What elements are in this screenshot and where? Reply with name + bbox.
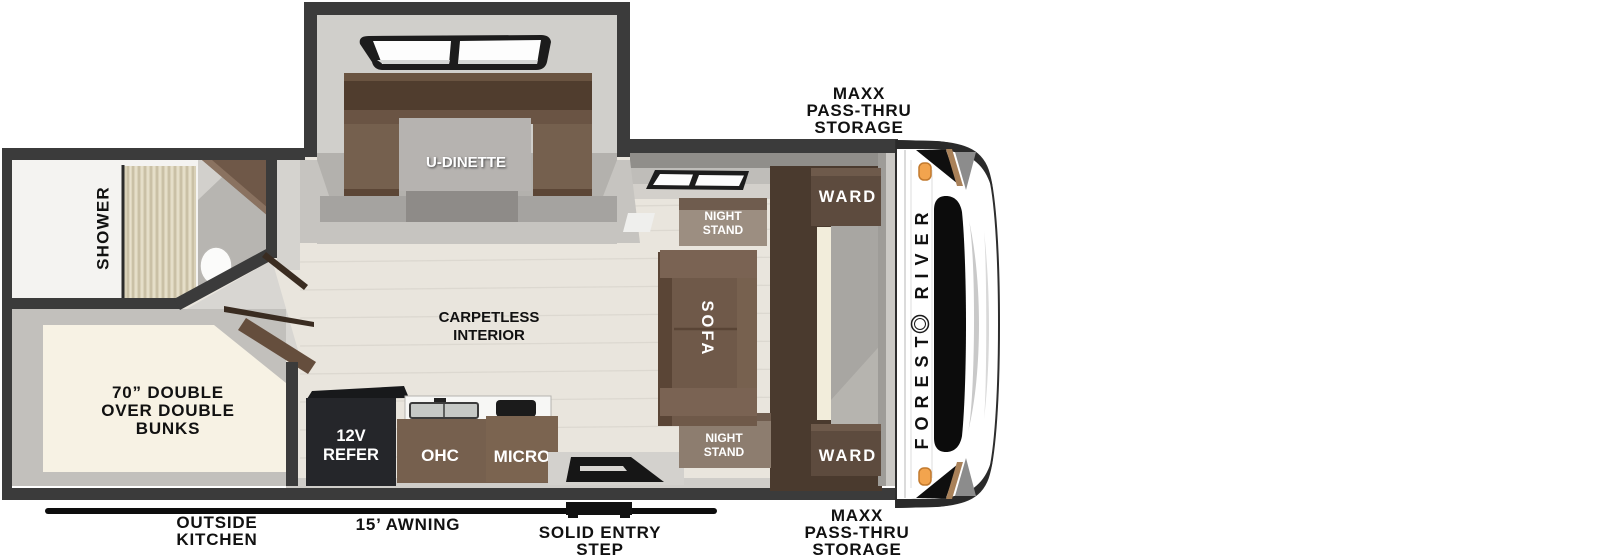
svg-text:CARPETLESS: CARPETLESS bbox=[439, 309, 540, 326]
svg-text:12V: 12V bbox=[336, 427, 365, 445]
svg-text:RIVER: RIVER bbox=[912, 204, 932, 299]
svg-text:70” DOUBLE: 70” DOUBLE bbox=[112, 383, 224, 402]
svg-text:STAND: STAND bbox=[703, 223, 744, 237]
svg-text:SOFA: SOFA bbox=[698, 301, 716, 358]
svg-text:STAND: STAND bbox=[704, 445, 745, 459]
svg-text:WARD: WARD bbox=[819, 447, 877, 465]
svg-text:KITCHEN: KITCHEN bbox=[176, 530, 257, 549]
svg-text:STEP: STEP bbox=[576, 540, 624, 559]
svg-text:BUNKS: BUNKS bbox=[136, 419, 200, 438]
svg-text:NIGHT: NIGHT bbox=[705, 431, 743, 445]
svg-text:REFER: REFER bbox=[323, 446, 379, 464]
svg-text:MICRO: MICRO bbox=[494, 447, 551, 466]
svg-text:SHOWER: SHOWER bbox=[94, 186, 113, 270]
svg-text:FOREST: FOREST bbox=[912, 328, 932, 449]
svg-text:INTERIOR: INTERIOR bbox=[453, 327, 525, 344]
svg-text:NIGHT: NIGHT bbox=[704, 209, 742, 223]
svg-text:OHC: OHC bbox=[421, 446, 459, 465]
svg-text:STORAGE: STORAGE bbox=[812, 540, 901, 559]
svg-text:WARD: WARD bbox=[819, 188, 877, 206]
svg-text:STORAGE: STORAGE bbox=[814, 118, 903, 137]
svg-text:OVER DOUBLE: OVER DOUBLE bbox=[101, 401, 234, 420]
svg-text:U-DINETTE: U-DINETTE bbox=[426, 154, 506, 171]
svg-text:15’ AWNING: 15’ AWNING bbox=[356, 515, 461, 534]
